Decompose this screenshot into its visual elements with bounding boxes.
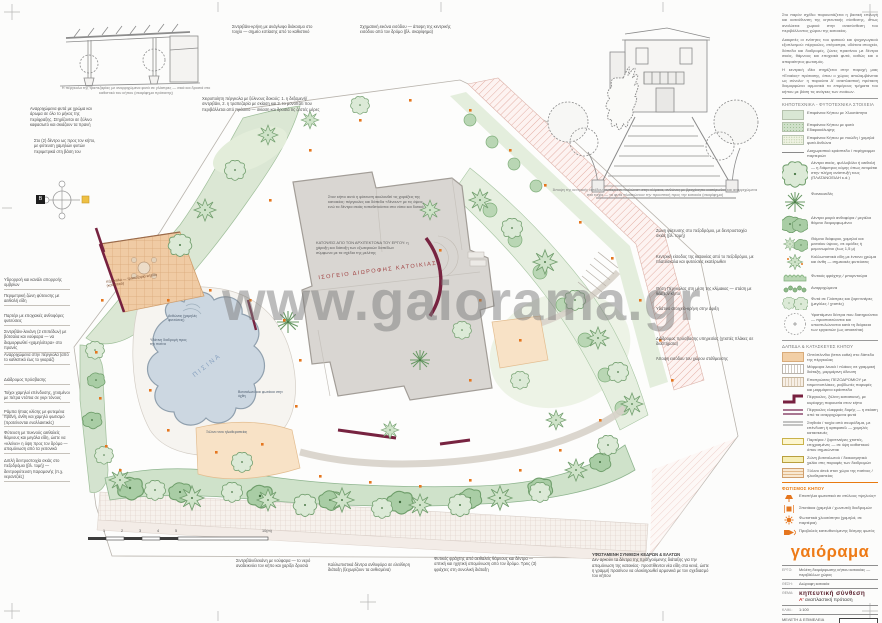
- light-pergola-line-icon: [782, 407, 804, 416]
- project-value: Μελέτη διαμόρφωσης κήπου κατοικίας — περ…: [799, 567, 878, 577]
- legend-item: Αναρριχώμενα: [782, 285, 878, 293]
- legend-item: Σποτάκια (χαμηλά / χωνευτά) διαδρομών: [782, 505, 878, 513]
- annotation-existing-cedars: ΥΦΙΣΤΑΜΕΝΗ ΣΥΝΘΕΣΗ ΚΕΔΡΩΝ & ΕΛΑΤΩΝ Δεν α…: [592, 552, 712, 579]
- legend-label: Δέντρα μικρά ανθοφόρα / μεγάλοι θάμνοι δ…: [811, 215, 878, 225]
- credits: ΜΕΛΕΤΗ & ΕΠΙΜΕΛΕΙΑ ΣΧΕΔΙΟΥ: ΓΑΙΟΡΑΜΑ — α…: [782, 617, 830, 623]
- scale-end-label: 10(m): [262, 529, 272, 533]
- annotation: Σιντριβάνι-κρήνη με ανάγλυφο διάκοσμο στ…: [232, 24, 320, 35]
- legend-item: Ζώνη βοτσαλωτού / διακοσμητικό χαλίκι στ…: [782, 455, 878, 465]
- annotation: Ράμπα ήπιας κλίσης με φυτεμένα πρανή, άν…: [4, 409, 72, 427]
- annotation: Καλλωπιστικά δέντρα ανθοφόρα σε ελεύθερη…: [328, 562, 420, 573]
- annotation: Φυτικός φράχτης από αειθαλείς θάμνους κα…: [434, 556, 538, 572]
- annotation: Αναρριχώμενα φυτά με χρώμα και άρωμα σε …: [30, 106, 102, 127]
- legend-label: Φυτικός φράχτης / μπορντούρα: [811, 273, 867, 278]
- legend-label: Ξύλινο deck στον χώρο της πισίνας / ηλιο…: [807, 468, 878, 478]
- deck-swatch: [782, 468, 804, 478]
- legend-label: Φωτιστικά χλοοτάπητα (χαμηλά, σε παρτέρι…: [799, 515, 878, 525]
- location-label: ΘΕΣΗ:: [782, 581, 797, 586]
- scale-tick: 2: [121, 529, 123, 533]
- titleblock-scale-row: ΚΛΙΜ.: 1:100: [782, 605, 878, 614]
- legend-item: Ξύλινο deck στον χώρο της πισίνας / ηλιο…: [782, 468, 878, 478]
- legend-label: Ζώνη βοτσαλωτού / διακοσμητικό χαλίκι στ…: [807, 455, 878, 465]
- scale-tick: 3: [139, 529, 141, 533]
- project-label: ΕΡΓΟ:: [782, 567, 797, 572]
- legend-item: Διαχωριστικό κράσπεδο / περίγραμμα παρτε…: [782, 148, 878, 158]
- annuals-swatch: [782, 135, 804, 145]
- annotation: Σιντριβάνι-λεκάνη (2 επιπέδων) με βότσαλ…: [4, 329, 72, 353]
- legend-item: Δέντρα μικρά ανθοφόρα / μεγάλοι θάμνοι δ…: [782, 215, 878, 233]
- edge-line-swatch: [782, 152, 804, 153]
- legend-label: Επιφάνεια Κήπου με Χλοοτάπητα: [807, 110, 867, 115]
- annotation: Τοίχοι χαμηλοί επένδυσης, χτισμένοι με π…: [4, 390, 72, 403]
- legend-label: Επιφάνεια Κήπου με ποώδη / χαμηλά φυτά Α…: [807, 135, 878, 145]
- legend-item: Φωτιστικά χλοοτάπητα (χαμηλά, σε παρτέρι…: [782, 515, 878, 525]
- legend-label: Επιστήλια φωτιστικά σε στύλους «ψηλούς»: [799, 493, 876, 498]
- legend-item: Επιφάνεια Κήπου με Χλοοτάπητα: [782, 110, 878, 120]
- sidewalk-swatch: [782, 377, 804, 387]
- annotation: Διάδρομος πρόσβασης υπηρεσίας (χτιστές π…: [656, 336, 756, 347]
- titleblock-subject-row: ΘΕΜΑ: κηπευτική σύνθεση Α' αναπλαστική π…: [782, 588, 878, 605]
- legend-item: Φοινικοειδές: [782, 191, 878, 213]
- legend-item: Δέντρα σκιάς, φυλλοβόλα ή αειθαλή — η δι…: [782, 160, 878, 188]
- annotation: Σιντριβάνι/λεκάνη με νούφαρα — το νερό α…: [236, 558, 322, 569]
- legend-label: Προβολείς κατευθυνόμενης δέσμης φωτός: [799, 528, 875, 533]
- legend-item: Καλλωπιστικά είδη με έντονο χρώμα και άν…: [782, 254, 878, 270]
- legend-item: Επιστρώσεις ΠΕΖΟΔΡΟΜΙΟΥ με τσιμεντοπλάκε…: [782, 377, 878, 392]
- lawn-swatch: [782, 110, 804, 120]
- pergola-sketch-caption: Η πέργκολα της τραπεζαρίας με αναρριχώμε…: [56, 86, 216, 96]
- marble-swatch: [782, 364, 804, 374]
- scale-tick: 5: [175, 529, 177, 533]
- planting-legend-header: ΚΗΠΟΤΕΧΝΙΚΑ - ΦΥΤΟΤΕΧΝΙΚΑ ΣΤΟΙΧΕΙΑ: [782, 98, 878, 107]
- legend-item: Οπτόπλινθοι (terra cotta) στο δάπεδο της…: [782, 352, 878, 362]
- legend-item: Επιφάνεια Κήπου με φυτά Εδαφοκάλυψης: [782, 122, 878, 132]
- legend-label: Παρτέρια / ζαρντινιέρες χτιστές, επιχρισ…: [807, 437, 878, 452]
- scale-bar: [88, 537, 268, 540]
- location-value: Διώροφη κατοικία: [799, 581, 829, 586]
- titleblock-sheet-row: ΜΕΛΕΤΗ & ΕΠΙΜΕΛΕΙΑ ΣΧΕΔΙΟΥ: ΓΑΙΟΡΑΜΑ — α…: [782, 614, 878, 623]
- annotation: Χειροποίητη πέργκολα με ξύλινους δοκούς:…: [202, 96, 324, 112]
- post-lamp-icon: [782, 493, 796, 502]
- legend-label: Επιστρώσεις ΠΕΖΟΔΡΟΜΙΟΥ με τσιμεντοπλάκε…: [807, 377, 878, 392]
- legend-item: Μάρμαρα λευκά / πλάκες σε γραμμική διάτα…: [782, 364, 878, 374]
- subject-main: κηπευτική σύνθεση: [799, 590, 865, 597]
- house-sketch-caption: Άποψη της κεντρικής εισόδου: κυπαρίσσι-«…: [552, 188, 758, 198]
- annotation: Θέση Πέργκολας στη μέση της κλίμακας — σ…: [656, 286, 756, 297]
- legend-label: Φοινικοειδές: [811, 191, 833, 196]
- legend-label: Επιφάνεια Κήπου με φυτά Εδαφοκάλυψης: [807, 122, 878, 132]
- scale-tick: 1: [103, 529, 105, 533]
- annotation: Διάδρομος πρόσβασης: [4, 377, 72, 385]
- legend-label: Καλλωπιστικά είδη με έντονο χρώμα και άν…: [811, 254, 878, 264]
- groundcover-swatch: [782, 122, 804, 132]
- pergola-sketch: [60, 24, 200, 86]
- pool-note: Ξύλινο ντεκ ηλιοθεραπείας: [206, 430, 252, 434]
- annotation: Περιμετρική ζώνη φύτευσης με αειθαλή είδ…: [4, 293, 72, 306]
- floodlight-icon: [782, 528, 796, 537]
- north-letter: Β: [36, 195, 45, 204]
- titleblock-location-row: ΘΕΣΗ: Διώροφη κατοικία: [782, 579, 878, 588]
- annotation-body: Δεν αρκούν τα δέντρα της προηγούμενης δι…: [592, 557, 712, 578]
- architect-note: ΚΑΤΟΨΕΙΣ ΑΠΟ ΤΟΝ ΑΡΧΙΤΕΚΤΟΝΑ ΤΟΥ ΕΡΓΟΥ: …: [316, 240, 410, 255]
- legend-item: Προβολείς κατευθυνόμενης δέσμης φωτός: [782, 528, 878, 537]
- legend-label: Μάρμαρα λευκά / πλάκες σε γραμμική διάτα…: [807, 364, 878, 374]
- legend-label: Φυτά σε Γλάστρες και ζαρντινιέρες (μεγάλ…: [811, 296, 878, 306]
- legend-label: Οπτόπλινθοι (terra cotta) στο δάπεδο της…: [807, 352, 878, 362]
- palm-symbol-icon: [782, 191, 808, 213]
- legend-label: Θάμνοι διάφοροι, χαμηλοί και μεσαίου ύψο…: [811, 236, 878, 251]
- annotation: Κεντρική είσοδος της κατοικίας από το πε…: [656, 254, 756, 265]
- legend-label: Πέργκολες, ξύλινη κατασκευή, με κυρίαρχη…: [807, 394, 878, 404]
- subject-label: ΘΕΜΑ:: [782, 590, 797, 595]
- legend-item: Θάμνοι διάφοροι, χαμηλοί και μεσαίου ύψο…: [782, 236, 878, 252]
- sheet-number: L 03a: [839, 618, 878, 623]
- lawn-light-icon: [782, 515, 796, 525]
- legend-item: Φυτικός φράχτης / μπορντούρα: [782, 273, 878, 283]
- annotation: Παρτέρι με εποχιακές ανθοφόρες φυτεύσεις: [4, 313, 72, 326]
- annotation: Άποψη εισόδου του χώρου στάθμευσης: [656, 356, 756, 361]
- watermark: www.gaiorama.gr: [222, 268, 692, 333]
- hedge-symbol-icon: [782, 273, 808, 283]
- lighting-legend-header: ΦΩΤΙΣΜΟΣ ΚΗΠΟΥ: [782, 482, 878, 491]
- pool-note: Βοτσαλωτό και φωτάκια στην όχθη: [238, 390, 284, 399]
- legend-item: Στηθαία / τοιχία από σκυρόδεμα, με επένδ…: [782, 420, 878, 435]
- subject-sub-text: αναπλαστική πρόταση: [804, 598, 853, 603]
- legend-label: Υφιστάμενα δέντρα που διατηρούνται — προ…: [811, 312, 878, 332]
- legend-label: Σποτάκια (χαμηλά / χωνευτά) διαδρομών: [799, 505, 872, 510]
- legend-item: Επιφάνεια Κήπου με ποώδη / χαμηλά φυτά Α…: [782, 135, 878, 145]
- planter-band-swatch: [782, 438, 804, 445]
- legend-label: Πέργκολες ελαφριάς δομής — η σκίαση από …: [807, 407, 878, 417]
- legend-label: Δέντρα σκιάς, φυλλοβόλα ή αειθαλή — η δι…: [811, 160, 878, 180]
- annotation: Υδρορροή και κανάλι απορροής ομβρίων: [4, 277, 72, 290]
- spot-light-icon: [782, 505, 796, 513]
- drawing-sheet: www.gaiorama.gr Η πέργκολα της τραπεζαρί…: [0, 0, 882, 623]
- pool-note: Ανθώνας (χαμηλές φυτεύσεις): [168, 314, 210, 323]
- legend-item: Επιστήλια φωτιστικά σε στύλους «ψηλούς»: [782, 493, 878, 502]
- potted-plant-symbol-icon: [782, 296, 808, 310]
- gravel-band-swatch: [782, 456, 804, 463]
- annotation: Στο (2) δέντρο ως προς τον κήπο, με φύτε…: [34, 138, 100, 154]
- titleblock-project-row: ΕΡΓΟ: Μελέτη διαμόρφωσης κήπου κατοικίας…: [782, 565, 878, 579]
- small-tree-symbol-icon: [782, 215, 808, 233]
- legend-label: Αναρριχώμενα: [811, 285, 837, 290]
- legend-label: Στηθαία / τοιχία από σκυρόδεμα, με επένδ…: [807, 420, 878, 435]
- intro-paragraph: Η κεντρική ιδέα στηρίζεται στην παροχή μ…: [782, 67, 878, 94]
- legend-item: Πέργκολες, ξύλινη κατασκευή, με κυρίαρχη…: [782, 394, 878, 404]
- gaiorama-logo: γαιόραμα: [782, 543, 878, 562]
- annotation: Σχηματική εικόνα εισόδου — άποψη της κεν…: [360, 24, 456, 35]
- scale-value: 1:100: [799, 607, 809, 612]
- annotation: Διπλή δεντροστοιχία σκιάς στο πεζοδρόμιο…: [4, 458, 72, 482]
- legend-item: Πέργκολες ελαφριάς δομής — η σκίαση από …: [782, 407, 878, 417]
- legend-item: Παρτέρια / ζαρντινιέρες χτιστές, επιχρισ…: [782, 437, 878, 452]
- scale-tick: 4: [157, 529, 159, 533]
- ornamental-symbol-icon: [782, 254, 808, 270]
- annotation: Ζώνη φύτευσης στο πεζοδρόμιο, με δεντροσ…: [656, 228, 756, 239]
- design-note: Στον κήπο αυτό η φύτευση ακολουθεί τις χ…: [328, 194, 430, 209]
- wall-line-icon: [782, 420, 804, 427]
- legend-label: Διαχωριστικό κράσπεδο / περίγραμμα παρτε…: [807, 148, 878, 158]
- scale-label: ΚΛΙΜ.:: [782, 607, 797, 612]
- legend-item: Υφιστάμενα δέντρα που διατηρούνται — προ…: [782, 312, 878, 336]
- shrub-symbol-icon: [782, 236, 808, 252]
- legend-sidebar: Στο παρόν σχέδιο παρουσιάζεται η βασική …: [782, 12, 878, 623]
- subject-sub: Α' αναπλαστική πρόταση: [799, 598, 865, 603]
- terracotta-swatch: [782, 352, 804, 362]
- annotation: Φύτευση με πυκνούς αειθαλείς θάμνους και…: [4, 430, 72, 454]
- annotation: Υδάτινο στοιχείο-κρήνη στην άφιξη: [656, 306, 756, 311]
- climber-symbol-icon: [782, 285, 808, 293]
- tree-symbol-icon: [782, 160, 808, 188]
- intro-paragraph: Στο παρόν σχέδιο παρουσιάζεται η βασική …: [782, 12, 878, 34]
- existing-tree-symbol-icon: [782, 312, 808, 336]
- heavy-pergola-line-icon: [782, 394, 804, 404]
- pool-note: Υδάτινη διαδρομή προς την πισίνα: [150, 338, 192, 347]
- annotation: Αναρριχώμενα στην πέργκολα (από το καθισ…: [4, 352, 72, 365]
- intro-paragraph: Διακριτές οι ενότητες του φυτικού και ψυ…: [782, 37, 878, 64]
- hardscape-legend-header: ΔΑΠΕΔΑ & ΚΑΤΑΣΚΕΥΕΣ ΚΗΠΟΥ: [782, 340, 878, 349]
- legend-item: Φυτά σε Γλάστρες και ζαρντινιέρες (μεγάλ…: [782, 296, 878, 310]
